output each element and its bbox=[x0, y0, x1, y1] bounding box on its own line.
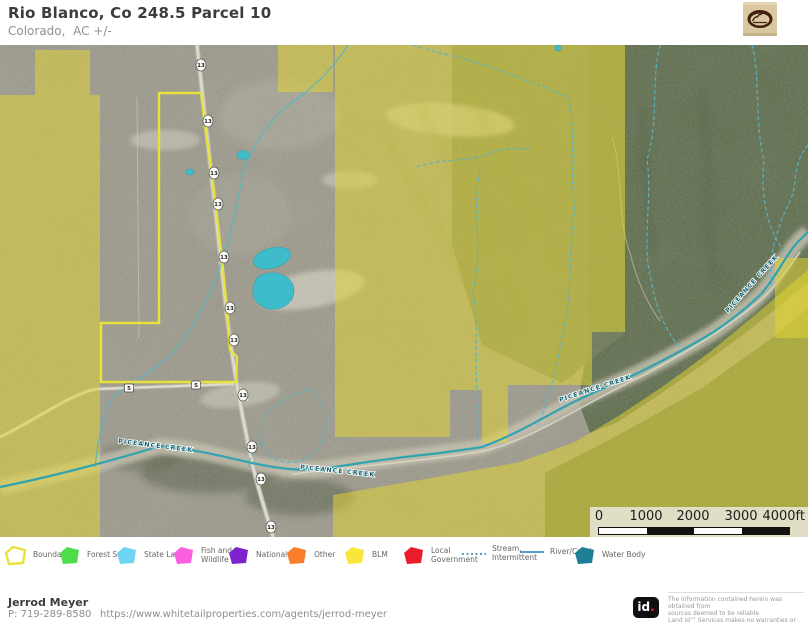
scale-label-0: 0 bbox=[595, 509, 603, 524]
legend: Boundary Forest Servic State Land Fish a… bbox=[0, 537, 808, 580]
footer: Jerrod Meyer P: 719-289-8580 https://www… bbox=[0, 580, 808, 625]
agent-name: Jerrod Meyer bbox=[8, 596, 88, 609]
disclaimer-line: The information contained herein was obt… bbox=[668, 596, 804, 610]
scale-segment bbox=[647, 528, 695, 534]
disclaimer: The information contained herein was obt… bbox=[668, 592, 804, 625]
whitetail-properties-logo-icon bbox=[743, 2, 777, 36]
header: Rio Blanco, Co 248.5 Parcel 10 Colorado,… bbox=[0, 0, 808, 45]
agent-phone: P: 719-289-8580 bbox=[8, 609, 91, 620]
boundary-swatch-icon bbox=[4, 545, 28, 566]
water-body-swatch-icon bbox=[573, 545, 597, 566]
land-id-dot: . bbox=[650, 600, 655, 614]
blm-swatch-icon bbox=[343, 545, 367, 566]
other-swatch-icon bbox=[285, 545, 309, 566]
land-id-text: id bbox=[637, 600, 650, 614]
local-government-swatch-icon bbox=[402, 545, 426, 566]
forest-service-swatch-icon bbox=[58, 545, 82, 566]
map-view[interactable]: PICEANCE CREEK PICEANCE CREEK PICEANCE C… bbox=[0, 45, 808, 537]
scale-label-4000ft: 4000ft bbox=[762, 509, 805, 524]
page-subtitle: Colorado, AC +/- bbox=[8, 24, 112, 38]
land-id-logo-icon: id. bbox=[633, 597, 659, 618]
page-title: Rio Blanco, Co 248.5 Parcel 10 bbox=[8, 4, 271, 22]
photo-grain bbox=[0, 45, 808, 537]
fish-wildlife-swatch-icon bbox=[172, 545, 196, 566]
scale-bar-segments bbox=[598, 527, 790, 535]
scale-label-1000: 1000 bbox=[629, 509, 662, 524]
disclaimer-line: Land id™ Services makes no warranties or… bbox=[668, 617, 804, 625]
national-park-swatch-icon bbox=[227, 545, 251, 566]
scale-segment bbox=[742, 528, 790, 534]
state-land-swatch-icon bbox=[115, 545, 139, 566]
disclaimer-line: sources deemed to be reliable. bbox=[668, 610, 804, 617]
river-creek-swatch-icon bbox=[519, 545, 545, 559]
stream-intermittent-swatch-icon bbox=[461, 547, 487, 561]
scale-segment bbox=[599, 528, 647, 534]
scale-label-3000: 3000 bbox=[724, 509, 757, 524]
scale-segment bbox=[694, 528, 742, 534]
agent-url: https://www.whitetailproperties.com/agen… bbox=[100, 609, 387, 620]
scale-bar: 0 1000 2000 3000 4000ft bbox=[590, 507, 808, 537]
scale-label-2000: 2000 bbox=[676, 509, 709, 524]
map-report-page: Rio Blanco, Co 248.5 Parcel 10 Colorado,… bbox=[0, 0, 808, 625]
legend-label: Water Body bbox=[602, 551, 660, 560]
legend-item-water-body: Water Body bbox=[573, 545, 660, 566]
